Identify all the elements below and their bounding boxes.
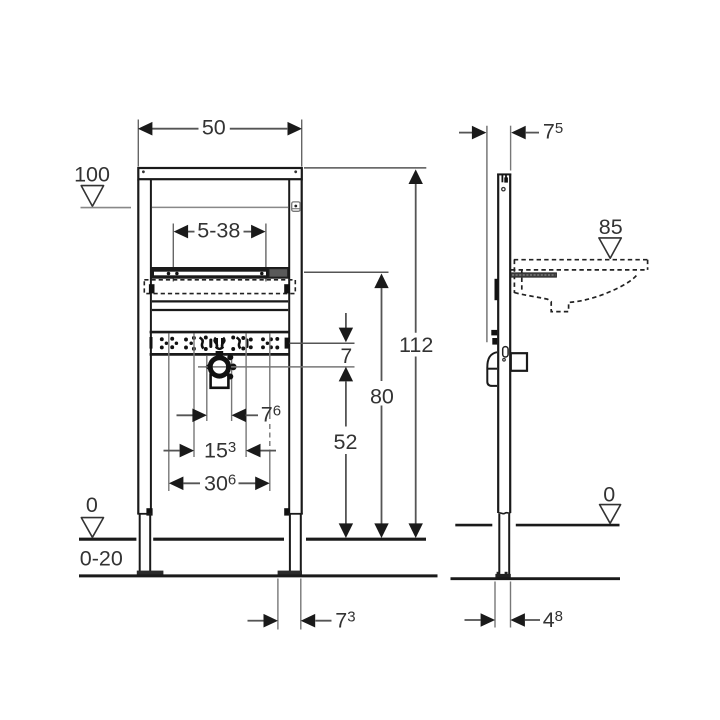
svg-text:85: 85 <box>599 215 623 239</box>
svg-text:5-38: 5-38 <box>197 219 240 243</box>
svg-text:80: 80 <box>370 384 394 408</box>
svg-text:0-20: 0-20 <box>80 547 123 571</box>
svg-text:7: 7 <box>341 345 353 368</box>
svg-text:0: 0 <box>86 493 98 517</box>
svg-text:52: 52 <box>334 430 358 454</box>
svg-text:112: 112 <box>399 333 433 357</box>
svg-text:0: 0 <box>603 482 615 506</box>
svg-text:100: 100 <box>74 162 110 186</box>
svg-text:50: 50 <box>202 116 226 140</box>
